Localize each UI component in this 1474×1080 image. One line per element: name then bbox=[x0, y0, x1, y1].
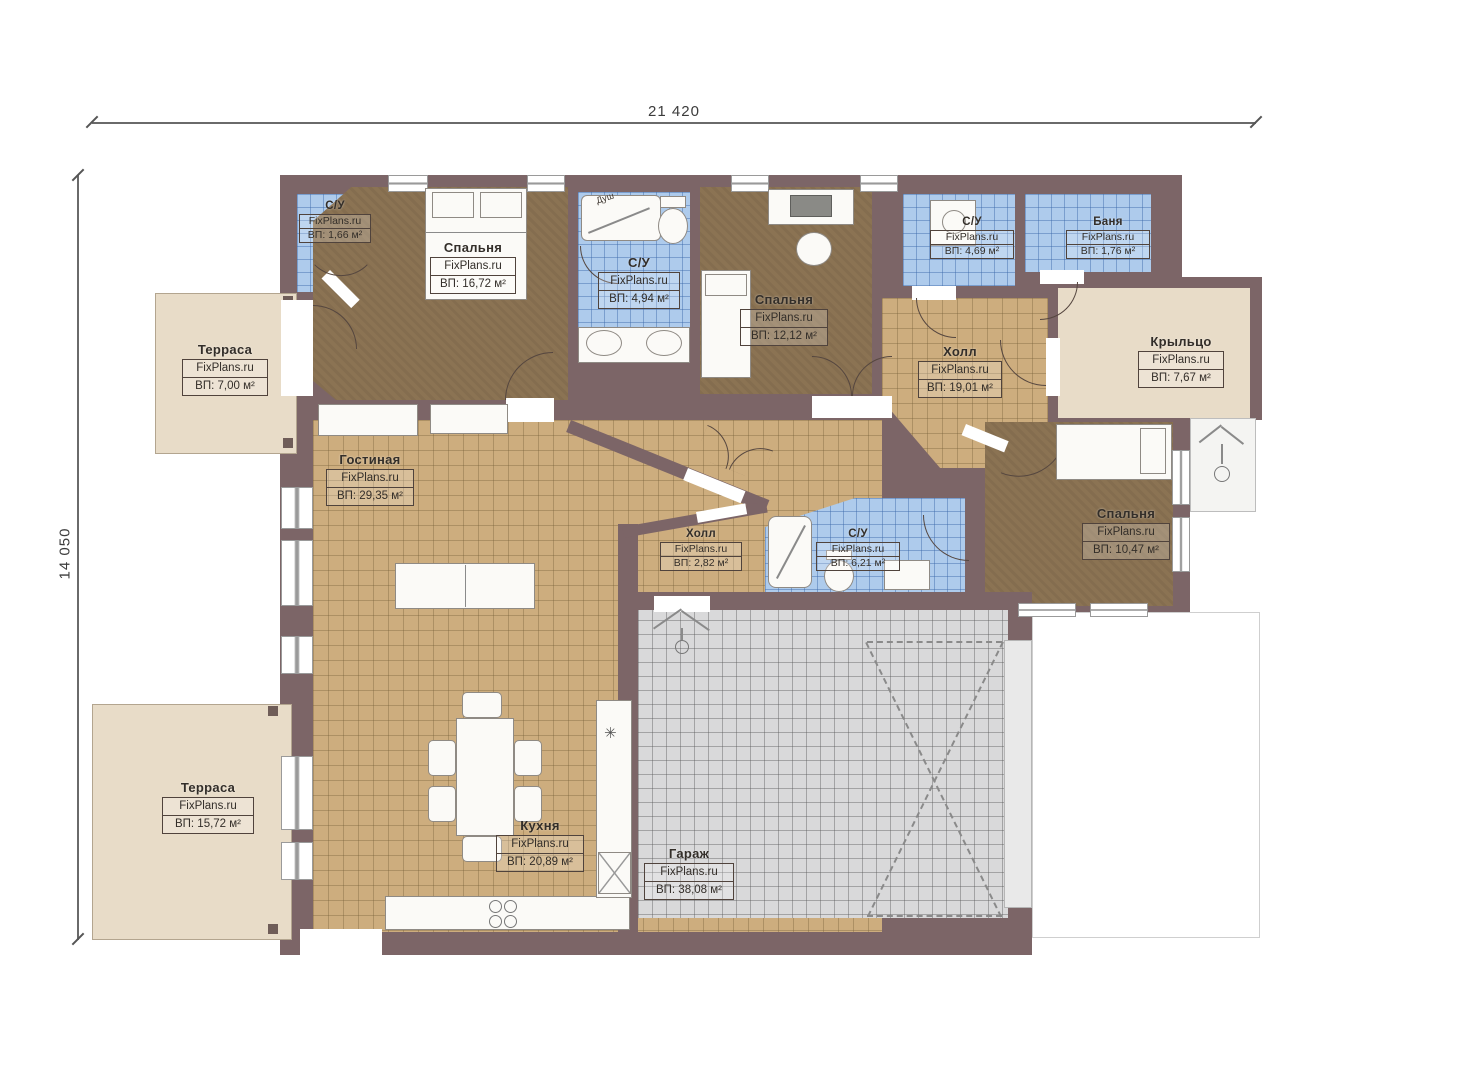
brand-watermark: FixPlans.ru bbox=[816, 542, 900, 557]
garage-door bbox=[1004, 640, 1032, 908]
dimension-height: 14 050 bbox=[57, 509, 74, 599]
toilet-tank bbox=[660, 196, 686, 208]
room-area: ВП: 29,35 м² bbox=[326, 488, 414, 506]
brand-watermark: FixPlans.ru bbox=[918, 361, 1002, 380]
wardrobe bbox=[318, 404, 418, 436]
window bbox=[281, 842, 313, 880]
room-area: ВП: 1,76 м² bbox=[1066, 245, 1150, 259]
brand-watermark: FixPlans.ru bbox=[598, 272, 680, 291]
sink bbox=[586, 330, 622, 356]
room-label-kitchen: Кухня FixPlans.ru ВП: 20,89 м² bbox=[496, 818, 584, 872]
canopy-line bbox=[681, 628, 683, 640]
room-area: ВП: 7,67 м² bbox=[1138, 370, 1224, 388]
toilet bbox=[658, 208, 688, 244]
brand-watermark: FixPlans.ru bbox=[182, 359, 268, 378]
room-name: С/У bbox=[598, 255, 680, 270]
sink bbox=[646, 330, 682, 356]
garage-dash-line bbox=[867, 915, 1002, 917]
room-name: Терраса bbox=[162, 780, 254, 795]
room-name: Терраса bbox=[182, 342, 268, 357]
room-name: Холл bbox=[918, 344, 1002, 359]
room-name: Холл bbox=[660, 528, 742, 540]
room-label-banya: Баня FixPlans.ru ВП: 1,76 м² bbox=[1066, 216, 1150, 259]
brand-watermark: FixPlans.ru bbox=[299, 214, 371, 229]
appliance bbox=[598, 852, 631, 894]
window bbox=[527, 175, 565, 192]
pillow bbox=[432, 192, 474, 218]
terrace-post bbox=[268, 706, 278, 716]
garage-dash-line bbox=[867, 641, 1002, 643]
sofa-split bbox=[465, 565, 466, 607]
cooktop-icon: ✳ bbox=[604, 724, 617, 742]
room-area: ВП: 15,72 м² bbox=[162, 816, 254, 834]
terrace2-door-opening bbox=[300, 929, 382, 955]
dimension-line-top bbox=[92, 122, 1256, 124]
desk-equipment bbox=[790, 195, 832, 217]
room-area: ВП: 12,12 м² bbox=[740, 328, 828, 346]
room-area: ВП: 7,00 м² bbox=[182, 378, 268, 396]
room-label-wc3: С/У FixPlans.ru ВП: 4,69 м² bbox=[930, 216, 1014, 259]
room-label-terrace2: Терраса FixPlans.ru ВП: 15,72 м² bbox=[162, 780, 254, 834]
canopy-post bbox=[675, 640, 689, 654]
wardrobe bbox=[430, 404, 508, 434]
blanket-line bbox=[426, 232, 526, 233]
chair bbox=[514, 740, 542, 776]
window bbox=[860, 175, 898, 192]
porch-steps bbox=[1190, 418, 1256, 512]
room-label-hall1: Холл FixPlans.ru ВП: 19,01 м² bbox=[918, 344, 1002, 398]
room-name: Крыльцо bbox=[1138, 334, 1224, 349]
brand-watermark: FixPlans.ru bbox=[326, 469, 414, 488]
stove-burner bbox=[489, 915, 502, 928]
brand-watermark: FixPlans.ru bbox=[660, 542, 742, 557]
brand-watermark: FixPlans.ru bbox=[1082, 523, 1170, 542]
room-label-garage: Гараж FixPlans.ru ВП: 38,08 м² bbox=[644, 846, 734, 900]
brand-watermark: FixPlans.ru bbox=[496, 835, 584, 854]
wall-porch-right bbox=[1248, 277, 1262, 420]
room-label-bedroom3: Спальня FixPlans.ru ВП: 10,47 м² bbox=[1082, 506, 1170, 560]
room-label-bedroom1: Спальня FixPlans.ru ВП: 16,72 м² bbox=[430, 240, 516, 294]
brand-watermark: FixPlans.ru bbox=[740, 309, 828, 328]
pillow bbox=[480, 192, 522, 218]
window bbox=[281, 636, 313, 674]
room-label-porch: Крыльцо FixPlans.ru ВП: 7,67 м² bbox=[1138, 334, 1224, 388]
dimension-line-left bbox=[77, 175, 79, 940]
stove-burner bbox=[504, 900, 517, 913]
room-name: С/У bbox=[930, 216, 1014, 228]
room-area: ВП: 10,47 м² bbox=[1082, 542, 1170, 560]
door-opening-bedroom1 bbox=[506, 398, 554, 422]
brand-watermark: FixPlans.ru bbox=[930, 230, 1014, 245]
room-name: Кухня bbox=[496, 818, 584, 833]
brand-watermark: FixPlans.ru bbox=[1138, 351, 1224, 370]
room-label-wc4: С/У FixPlans.ru ВП: 6,21 м² bbox=[816, 528, 900, 571]
room-name: С/У bbox=[816, 528, 900, 540]
steps-marker bbox=[1214, 466, 1230, 482]
room-name: Спальня bbox=[1082, 506, 1170, 521]
brand-watermark: FixPlans.ru bbox=[1066, 230, 1150, 245]
room-area: ВП: 4,94 м² bbox=[598, 291, 680, 309]
window bbox=[388, 175, 428, 192]
window bbox=[1018, 603, 1076, 617]
room-label-terrace1: Терраса FixPlans.ru ВП: 7,00 м² bbox=[182, 342, 268, 396]
chair bbox=[514, 786, 542, 822]
room-area: ВП: 1,66 м² bbox=[299, 229, 371, 243]
room-label-living: Гостиная FixPlans.ru ВП: 29,35 м² bbox=[326, 452, 414, 506]
room-area: ВП: 20,89 м² bbox=[496, 854, 584, 872]
room-name: Гараж bbox=[644, 846, 734, 861]
window bbox=[1172, 450, 1190, 505]
brand-watermark: FixPlans.ru bbox=[644, 863, 734, 882]
room-label-wc1: С/У FixPlans.ru ВП: 1,66 м² bbox=[299, 200, 371, 243]
room-area: ВП: 4,69 м² bbox=[930, 245, 1014, 259]
chair bbox=[428, 740, 456, 776]
room-area: ВП: 2,82 м² bbox=[660, 557, 742, 571]
window bbox=[281, 540, 313, 606]
room-name: Гостиная bbox=[326, 452, 414, 467]
window bbox=[1172, 517, 1190, 572]
stove-burner bbox=[489, 900, 502, 913]
room-name: С/У bbox=[299, 200, 371, 212]
dimension-width: 21 420 bbox=[92, 103, 1256, 120]
room-area: ВП: 6,21 м² bbox=[816, 557, 900, 571]
room-name: Спальня bbox=[740, 292, 828, 307]
room-label-wc2: С/У FixPlans.ru ВП: 4,94 м² bbox=[598, 255, 680, 309]
brand-watermark: FixPlans.ru bbox=[162, 797, 254, 816]
terrace-post bbox=[283, 438, 293, 448]
window bbox=[1090, 603, 1148, 617]
room-label-hall2: Холл FixPlans.ru ВП: 2,82 м² bbox=[660, 528, 742, 571]
room-name: Баня bbox=[1066, 216, 1150, 228]
door-opening-bedroom2 bbox=[812, 396, 892, 418]
floor-plan: 21 420 14 050 bbox=[0, 0, 1474, 1080]
chair bbox=[462, 692, 502, 718]
terrace-post bbox=[268, 924, 278, 934]
steps-arrow-stem bbox=[1221, 444, 1223, 464]
window bbox=[281, 756, 313, 830]
room-area: ВП: 19,01 м² bbox=[918, 380, 1002, 398]
room-label-bedroom2: Спальня FixPlans.ru ВП: 12,12 м² bbox=[740, 292, 828, 346]
terrace-door-opening bbox=[281, 300, 313, 396]
driveway bbox=[1032, 612, 1260, 938]
room-name: Спальня bbox=[430, 240, 516, 255]
chair bbox=[428, 786, 456, 822]
door-opening-porch bbox=[1046, 338, 1060, 396]
pillow bbox=[1140, 428, 1166, 474]
chair bbox=[796, 232, 832, 266]
window bbox=[281, 487, 313, 529]
window bbox=[731, 175, 769, 192]
stove-burner bbox=[504, 915, 517, 928]
brand-watermark: FixPlans.ru bbox=[430, 257, 516, 276]
room-area: ВП: 16,72 м² bbox=[430, 276, 516, 294]
room-area: ВП: 38,08 м² bbox=[644, 882, 734, 900]
